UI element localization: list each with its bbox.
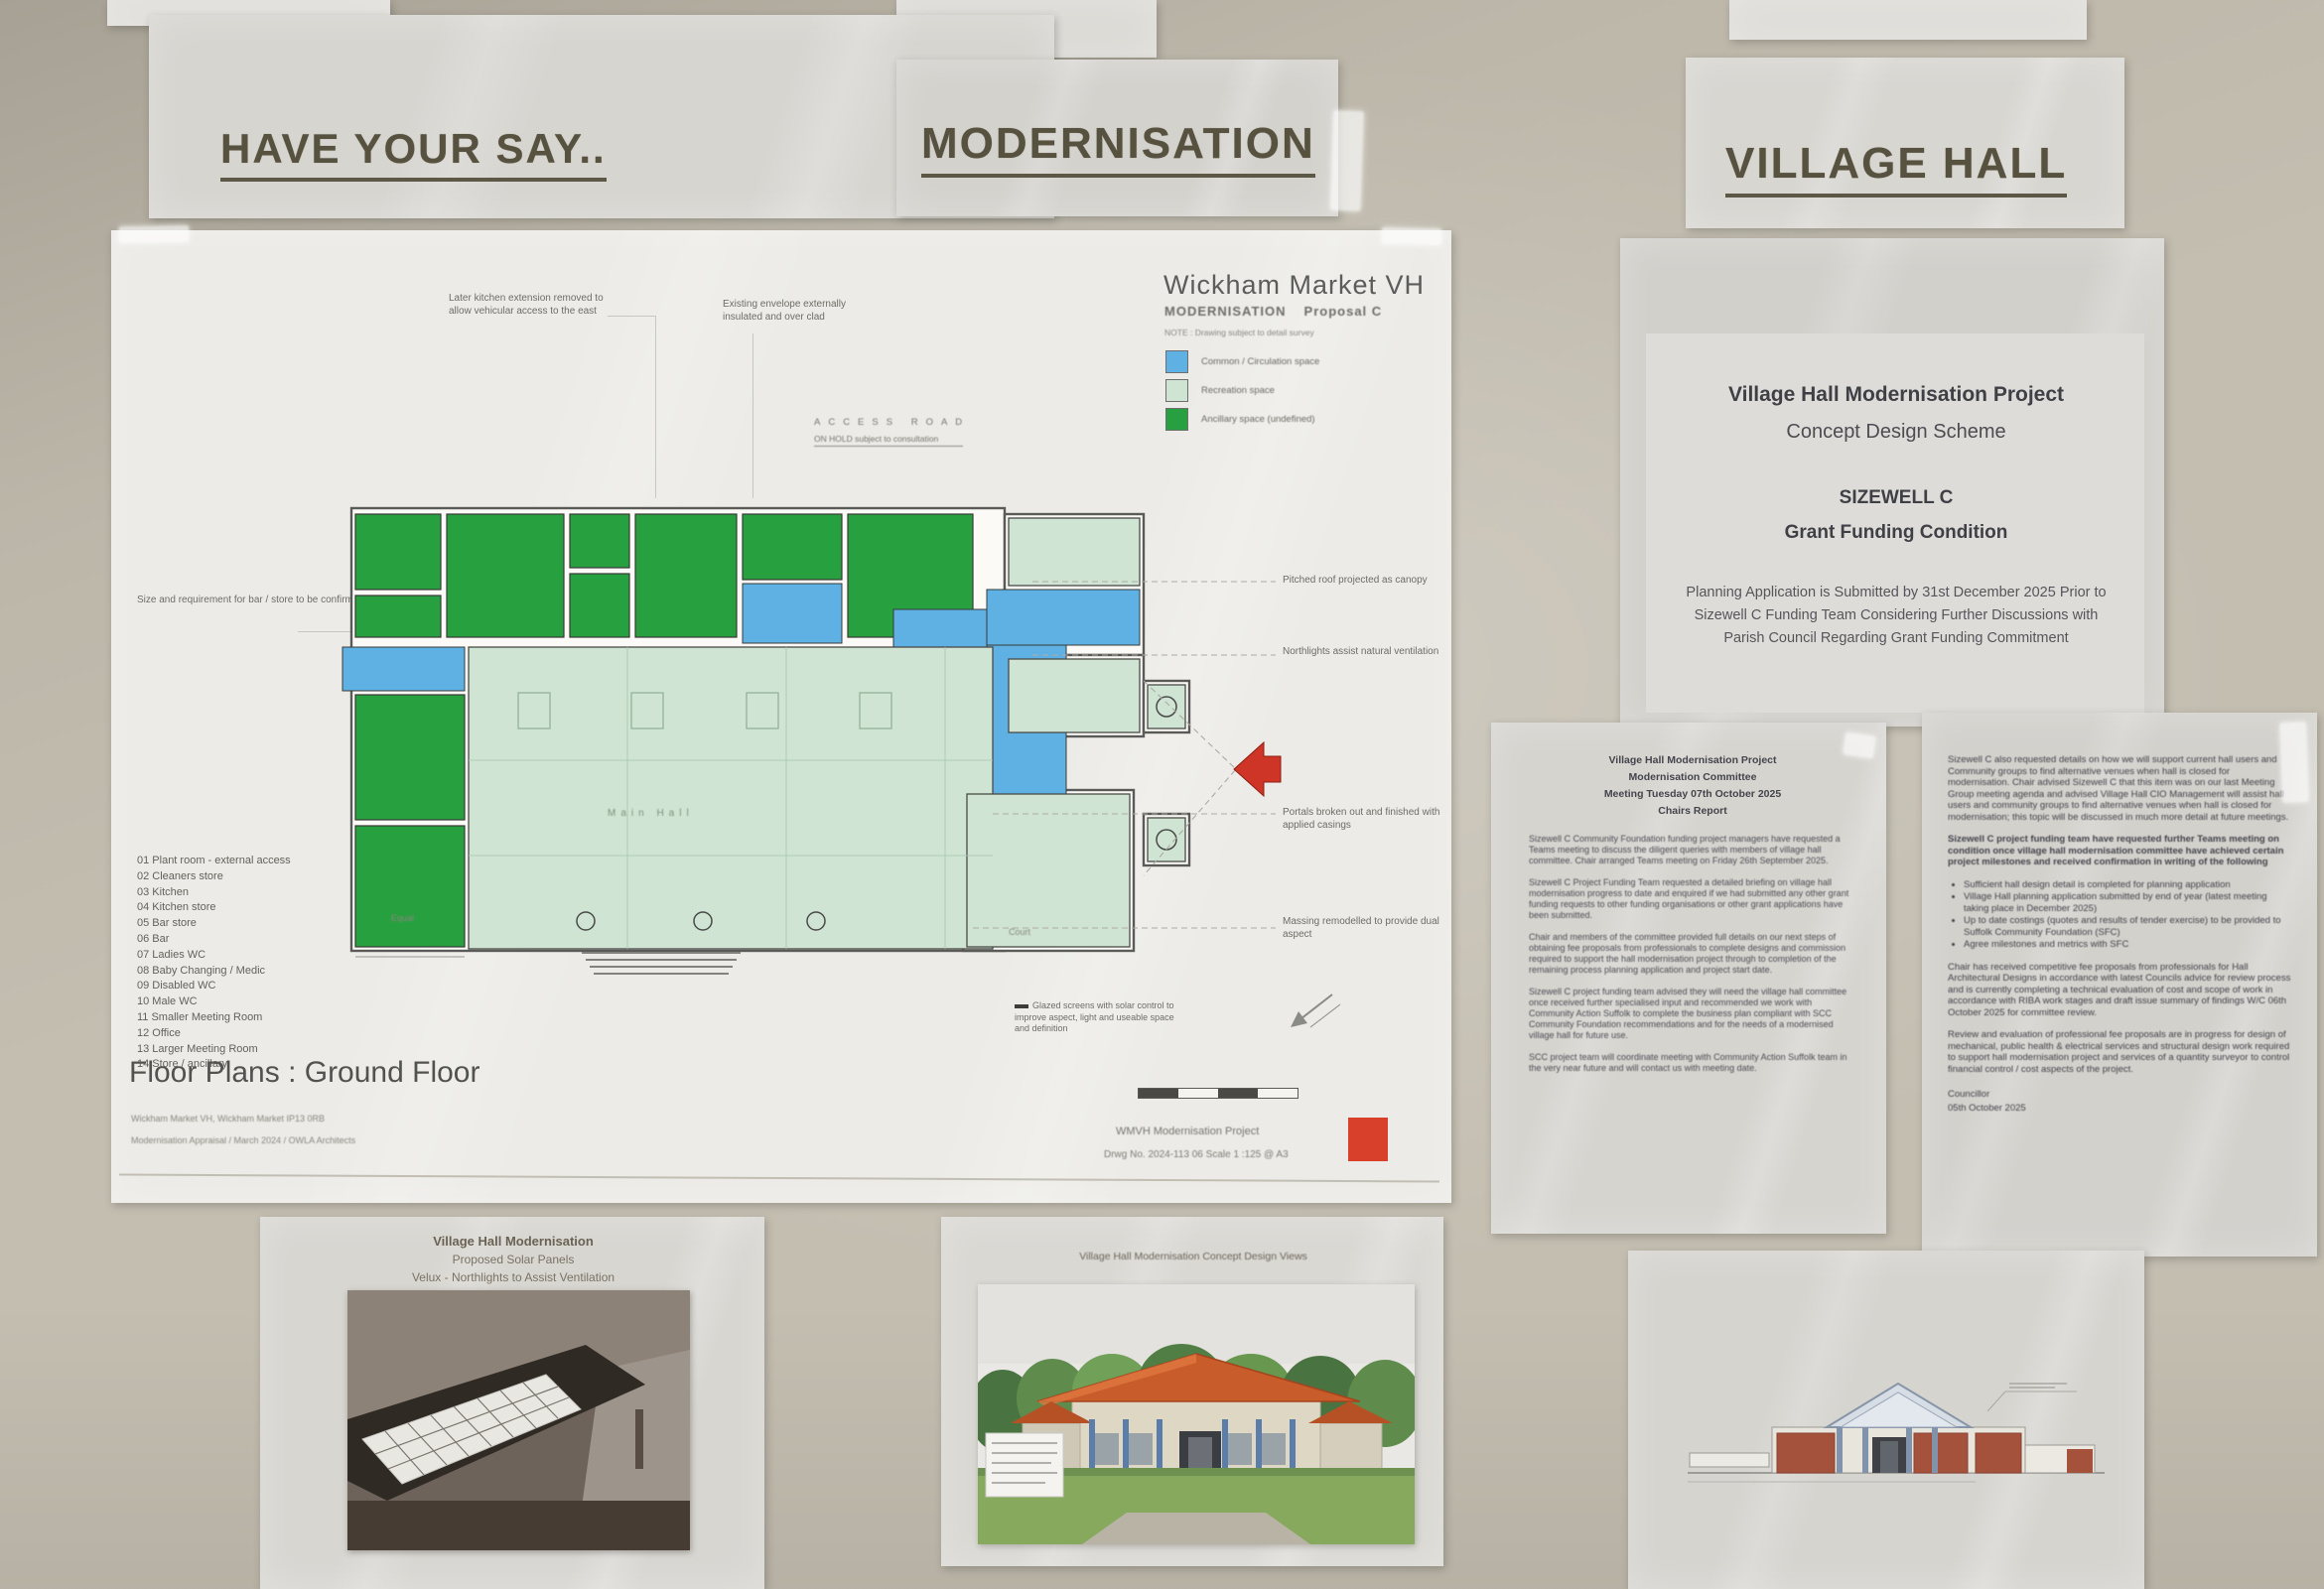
room-schedule-item: 11 Smaller Meeting Room: [137, 1010, 291, 1026]
room-schedule-item: 09 Disabled WC: [137, 979, 291, 994]
concept-doc-content: Village Hall Modernisation Project Conce…: [1650, 383, 2142, 650]
room-schedule-item: 05 Bar store: [137, 916, 291, 932]
glazing-text: Glazed screens with solar control to imp…: [1015, 1000, 1174, 1033]
legend-label: Ancillary space (undefined): [1201, 414, 1315, 425]
legend-row: Recreation space: [1165, 376, 1319, 405]
milestones-bullet: Sufficient hall design detail is complet…: [1964, 879, 2293, 891]
access-road-label: ACCESS ROAD: [814, 417, 970, 428]
top-edge-paper-right: [1729, 0, 2087, 40]
milestones-p4: Review and evaluation of professional fe…: [1948, 1029, 2293, 1075]
room-schedule-item: 04 Kitchen store: [137, 900, 291, 916]
footer-appraisal: Modernisation Appraisal / March 2024 / O…: [131, 1135, 355, 1145]
tape-strip: [1330, 111, 1363, 211]
solar-panels-photo: [347, 1290, 690, 1550]
minutes-paragraph: Sizewell C Community Foundation funding …: [1529, 834, 1856, 866]
solar-caption-3: Velux - Northlights to Assist Ventilatio…: [295, 1268, 732, 1286]
concept-body: Planning Application is Submitted by 31s…: [1673, 582, 2119, 650]
footer-drawing-number: Drwg No. 2024-113 06 Scale 1 :125 @ A3: [1104, 1149, 1289, 1160]
milestones-bullet: Up to date costings (quotes and results …: [1964, 915, 2293, 938]
milestones-bullet: Village Hall planning application submit…: [1964, 891, 2293, 914]
legend-swatch: [1165, 408, 1188, 431]
milestones-signoff: Councillor: [1948, 1089, 2293, 1101]
milestones-bullet: Agree milestones and metrics with SFC: [1964, 939, 2293, 951]
room-schedule-item: 08 Baby Changing / Medic: [137, 964, 291, 980]
leader-line: [608, 316, 655, 317]
minutes-committee: Modernisation Committee: [1529, 769, 1856, 786]
room-schedule-item: 03 Kitchen: [137, 885, 291, 901]
court-label: Court: [1009, 927, 1030, 937]
solar-caption: Village Hall Modernisation Proposed Sola…: [295, 1233, 732, 1286]
note-bar-store: Size and requirement for bar / store to …: [137, 594, 370, 606]
note-northlights: Northlights assist natural ventilation: [1283, 645, 1456, 658]
main-hall-label: Main Hall: [608, 808, 694, 819]
heading-village-hall: VILLAGE HALL: [1725, 139, 2067, 198]
tape-strip: [1382, 227, 1441, 245]
milestones-bullets: Sufficient hall design detail is complet…: [1948, 879, 2293, 951]
minutes-report-heading: Chairs Report: [1529, 803, 1856, 820]
concept-grant: Grant Funding Condition: [1650, 522, 2142, 544]
concept-sizewell: SIZEWELL C: [1650, 487, 2142, 509]
room-schedule-item: 06 Bar: [137, 932, 291, 948]
glazing-key-mark: [1015, 1004, 1028, 1008]
minutes-paragraph: Sizewell C project funding team advised …: [1529, 987, 1856, 1041]
note-kitchen-extension: Later kitchen extension removed to allow…: [449, 292, 606, 318]
minutes-paragraph: Sizewell C Project Funding Team requeste…: [1529, 877, 1856, 921]
minutes-paragraph: SCC project team will coordinate meeting…: [1529, 1052, 1856, 1074]
minutes-doc-content: Village Hall Modernisation Project Moder…: [1529, 752, 1856, 1085]
note-glazing: Glazed screens with solar control to imp…: [1015, 1000, 1191, 1035]
note-canopy: Pitched roof projected as canopy: [1283, 574, 1456, 587]
floor-plan-drawing: [338, 486, 1449, 1042]
minutes-title: Village Hall Modernisation Project: [1529, 752, 1856, 769]
legend-swatch: [1165, 379, 1188, 402]
heading-have-your-say: HAVE YOUR SAY..: [220, 125, 607, 182]
solar-caption-2: Proposed Solar Panels: [295, 1251, 732, 1268]
elevation-drawing: [1678, 1362, 2115, 1511]
scale-bar: [1138, 1088, 1299, 1099]
footer-project: WMVH Modernisation Project: [1116, 1126, 1259, 1137]
concept-render-image: [978, 1284, 1415, 1544]
room-schedule-item: 07 Ladies WC: [137, 948, 291, 964]
solar-caption-1: Village Hall Modernisation: [295, 1233, 732, 1251]
note-envelope: Existing envelope externally insulated a…: [723, 298, 854, 324]
milestones-p1: Sizewell C also requested details on how…: [1948, 754, 2293, 823]
concept-subtitle: Concept Design Scheme: [1650, 421, 2142, 444]
concept-title: Village Hall Modernisation Project: [1650, 383, 2142, 407]
tape-strip: [119, 225, 189, 242]
room-schedule: 01 Plant room - external access02 Cleane…: [137, 854, 291, 1073]
room-schedule-item: 01 Plant room - external access: [137, 854, 291, 869]
legend-label: Recreation space: [1201, 385, 1275, 396]
legend-swatch: [1165, 350, 1188, 373]
notice-board-photo: { "headings": { "left": "HAVE YOUR SAY..…: [0, 0, 2324, 1589]
registration-mark: [1348, 1118, 1388, 1161]
minutes-paragraph: Chair and members of the committee provi…: [1529, 932, 1856, 976]
room-schedule-item: 13 Larger Meeting Room: [137, 1042, 291, 1058]
leader-line: [655, 316, 656, 498]
render-caption: Village Hall Modernisation Concept Desig…: [953, 1251, 1434, 1262]
note-massing: Massing remodelled to provide dual aspec…: [1283, 915, 1449, 941]
milestones-p3: Chair has received competitive fee propo…: [1948, 962, 2293, 1019]
plan-proposal-c: Proposal C: [1304, 304, 1383, 319]
tape-strip: [2280, 723, 2309, 803]
minutes-date: Meeting Tuesday 07th October 2025: [1529, 786, 1856, 803]
drawing-title: Floor Plans : Ground Floor: [129, 1056, 479, 1090]
legend-row: Ancillary space (undefined): [1165, 405, 1319, 434]
legend-label: Common / Circulation space: [1201, 356, 1319, 367]
note-portals: Portals broken out and finished with app…: [1283, 806, 1449, 832]
leader-line: [752, 333, 753, 498]
room-schedule-item: 12 Office: [137, 1026, 291, 1042]
tape-strip: [1844, 732, 1876, 758]
room-schedule-item: 10 Male WC: [137, 994, 291, 1010]
milestones-doc-content: Sizewell C also requested details on how…: [1948, 754, 2293, 1114]
plan-note: NOTE : Drawing subject to detail survey: [1164, 328, 1314, 337]
red-arrow-marker: [1234, 742, 1281, 796]
room-schedule-item: 02 Cleaners store: [137, 869, 291, 885]
milestones-p2: Sizewell C project funding team have req…: [1948, 834, 2293, 868]
minutes-paragraphs: Sizewell C Community Foundation funding …: [1529, 834, 1856, 1074]
plan-proposal-line: MODERNISATION Proposal C: [1164, 304, 1382, 319]
plan-proposal: MODERNISATION: [1164, 304, 1287, 319]
milestones-signoff-date: 05th October 2025: [1948, 1103, 2293, 1115]
plan-legend: Common / Circulation space Recreation sp…: [1165, 347, 1319, 434]
legend-row: Common / Circulation space: [1165, 347, 1319, 376]
footer-address: Wickham Market VH, Wickham Market IP13 0…: [131, 1114, 325, 1124]
plan-title: Wickham Market VH: [1163, 270, 1425, 301]
equal-label: Equal: [391, 913, 414, 923]
access-road-note: ON HOLD subject to consultation: [814, 434, 963, 447]
heading-modernisation: MODERNISATION: [921, 119, 1315, 178]
